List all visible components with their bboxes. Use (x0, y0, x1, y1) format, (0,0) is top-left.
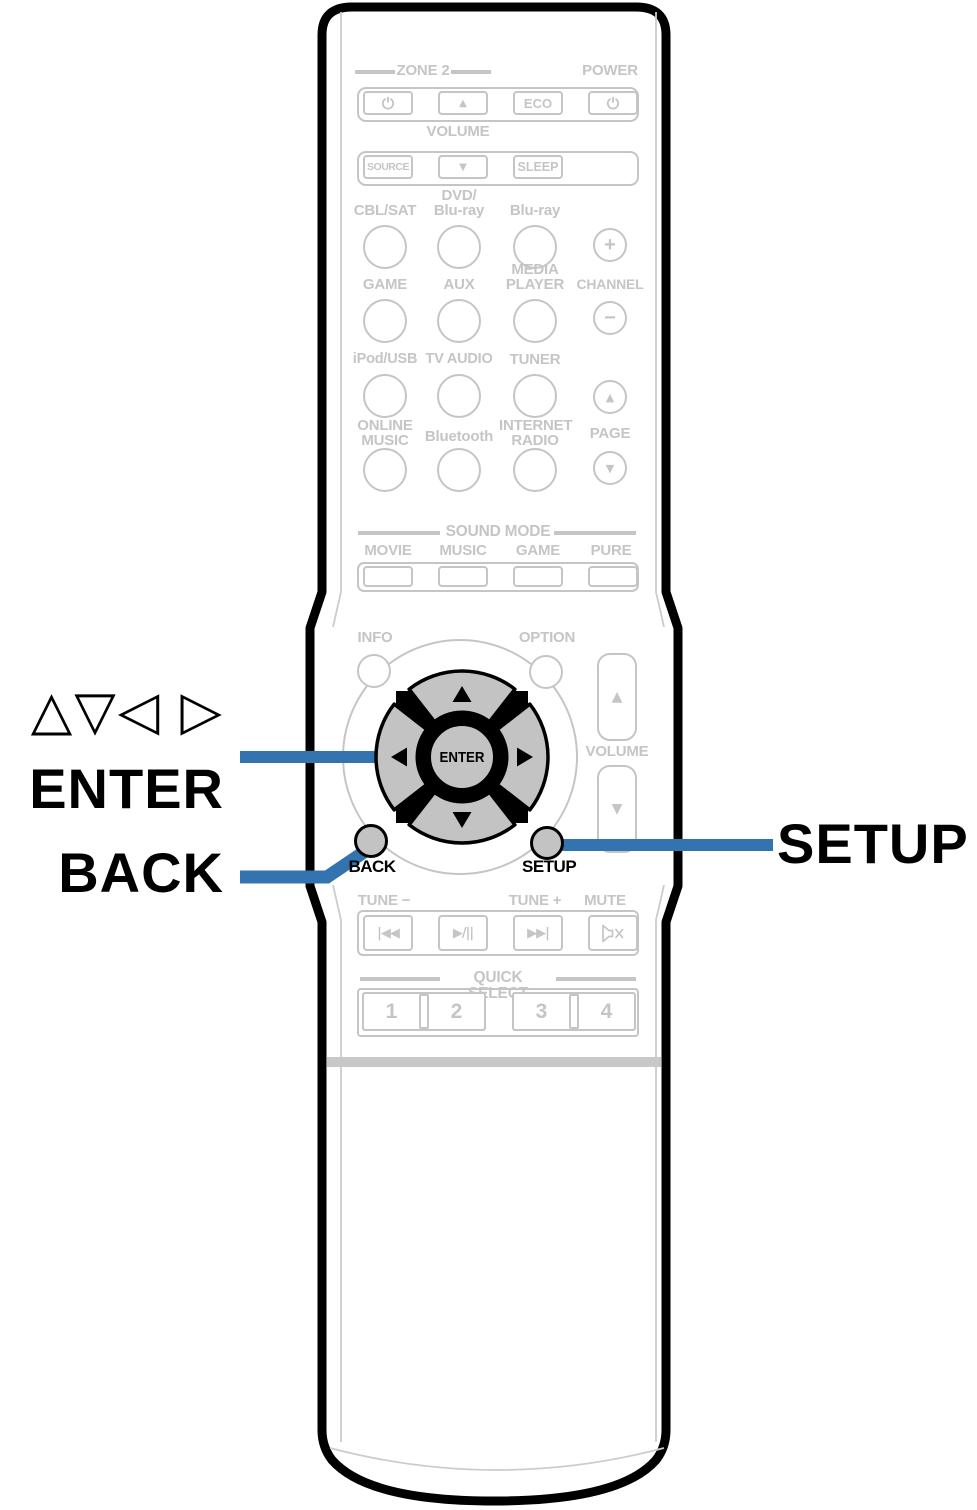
sound-mode-header: SOUND MODE (444, 524, 552, 540)
media-player-button[interactable] (513, 299, 557, 343)
internet-radio-label: INTERNET RADIO (499, 419, 571, 448)
bluray-label: Blu-ray (499, 203, 571, 218)
zone2-dash-left (355, 70, 395, 74)
sound-mode-dash-right (554, 531, 636, 535)
cbl-sat-button[interactable] (363, 225, 407, 269)
tune-plus-label: TUNE + (504, 893, 566, 908)
setup-callout-line (561, 839, 773, 851)
ipod-usb-button[interactable] (363, 374, 407, 418)
zone2-header: ZONE 2 (396, 63, 450, 78)
up-triangle-icon: ▲ (606, 391, 614, 404)
dvd-bluray-label: DVD/ Blu-ray (423, 189, 495, 218)
channel-down-button[interactable]: − (593, 301, 627, 335)
enter-button-label: ENTER (440, 750, 485, 766)
skip-forward-icon: ▶▶| (527, 926, 549, 941)
page-down-button[interactable]: ▼ (593, 451, 627, 485)
quick-select-1-button[interactable]: 1 (364, 994, 419, 1029)
quick-select-divider (569, 994, 579, 1029)
cbl-sat-label: CBL/SAT (349, 203, 421, 218)
page-up-button[interactable]: ▲ (593, 380, 627, 414)
internet-radio-button[interactable] (513, 448, 557, 492)
info-label: INFO (346, 630, 404, 645)
game-button[interactable] (363, 299, 407, 343)
mute-speaker-icon (601, 924, 625, 943)
power-header: POWER (580, 63, 640, 78)
sleep-label: SLEEP (518, 160, 559, 174)
down-triangle-icon: ▼ (606, 462, 614, 475)
tuner-label: TUNER (499, 352, 571, 367)
mute-button[interactable] (588, 915, 638, 951)
down-triangle-icon: ▼ (612, 801, 623, 817)
pure-button[interactable] (588, 566, 638, 587)
enter-callout-label: ENTER (0, 761, 224, 817)
skip-back-icon: |◀◀ (377, 926, 399, 941)
sleep-button[interactable]: SLEEP (513, 155, 563, 179)
power-icon (381, 96, 395, 110)
tv-audio-label: TV AUDIO (423, 352, 495, 367)
back-button[interactable] (354, 824, 388, 858)
tv-audio-button[interactable] (437, 374, 481, 418)
option-label: OPTION (510, 630, 584, 645)
ipod-usb-label: iPod/USB (349, 352, 421, 367)
page-header: PAGE (578, 426, 642, 441)
tune-minus-label: TUNE − (353, 893, 415, 908)
volume-header: VOLUME (420, 124, 496, 139)
enter-callout-line (240, 751, 380, 763)
zone2-power-button[interactable] (363, 91, 413, 115)
dvd-bluray-button[interactable] (437, 225, 481, 269)
main-volume-header: VOLUME (585, 744, 649, 759)
channel-up-button[interactable]: + (593, 228, 627, 262)
info-button[interactable] (357, 654, 391, 688)
music-label: MUSIC (427, 543, 499, 558)
back-button-label: BACK (348, 858, 396, 875)
zone2-dash-right (451, 70, 491, 74)
aux-label: AUX (423, 277, 495, 292)
zone2-volume-down-button[interactable]: ▼ (438, 155, 488, 179)
quick-select-divider (419, 994, 429, 1029)
movie-label: MOVIE (352, 543, 424, 558)
power-icon (606, 96, 620, 110)
remote-diagram: ZONE 2 POWER ▲ ECO VOLUME SOURCE ▼ SLEEP… (0, 0, 977, 1510)
quick-select-2-button[interactable]: 2 (429, 994, 484, 1029)
sound-mode-dash-left (358, 531, 440, 535)
setup-button-label: SETUP (522, 858, 574, 875)
setup-button[interactable] (530, 826, 564, 860)
eco-label: ECO (524, 96, 552, 111)
pure-label: PURE (577, 543, 645, 558)
setup-callout-label: SETUP (777, 816, 977, 872)
play-pause-icon: ▶/|| (453, 926, 473, 941)
up-triangle-icon: ▲ (612, 689, 623, 705)
music-button[interactable] (438, 566, 488, 587)
quick-select-4-button[interactable]: 4 (579, 994, 634, 1029)
media-player-label: MEDIA PLAYER (499, 263, 571, 292)
down-triangle-icon: ▼ (459, 162, 467, 173)
game-label: GAME (349, 277, 421, 292)
play-pause-button[interactable]: ▶/|| (438, 915, 488, 951)
quick-select-3-button[interactable]: 3 (514, 994, 569, 1029)
online-music-label: ONLINE MUSIC (349, 419, 421, 448)
quick-select-group-3-4: 3 4 (512, 992, 636, 1031)
source-label: SOURCE (367, 161, 409, 173)
skip-forward-button[interactable]: ▶▶| (513, 915, 563, 951)
bluetooth-button[interactable] (437, 448, 481, 492)
aux-button[interactable] (437, 299, 481, 343)
minus-icon: − (604, 307, 616, 330)
source-button[interactable]: SOURCE (363, 155, 413, 179)
tuner-button[interactable] (513, 374, 557, 418)
plus-icon: + (604, 234, 616, 257)
skip-back-button[interactable]: |◀◀ (363, 915, 413, 951)
main-power-button[interactable] (588, 91, 638, 115)
channel-header: CHANNEL (575, 277, 645, 291)
quick-select-group-1-2: 1 2 (362, 992, 486, 1031)
cursor-keys-callout-label: △▽◁ ▷ (0, 684, 224, 738)
zone2-volume-up-button[interactable]: ▲ (438, 91, 488, 115)
game-mode-label: GAME (502, 543, 574, 558)
volume-up-button[interactable]: ▲ (597, 653, 637, 741)
movie-button[interactable] (363, 566, 413, 587)
quick-select-dash-left (360, 977, 440, 981)
bluetooth-label: Bluetooth (423, 429, 495, 444)
quick-select-dash-right (556, 977, 636, 981)
option-button[interactable] (529, 655, 563, 689)
online-music-button[interactable] (363, 448, 407, 492)
eco-button[interactable]: ECO (513, 91, 563, 115)
mute-label: MUTE (578, 893, 632, 908)
body-seam-band (327, 1057, 661, 1067)
back-callout-label: BACK (0, 845, 224, 901)
game-mode-button[interactable] (513, 566, 563, 587)
cursor-pad: ENTER (362, 657, 562, 857)
up-triangle-icon: ▲ (459, 98, 467, 109)
